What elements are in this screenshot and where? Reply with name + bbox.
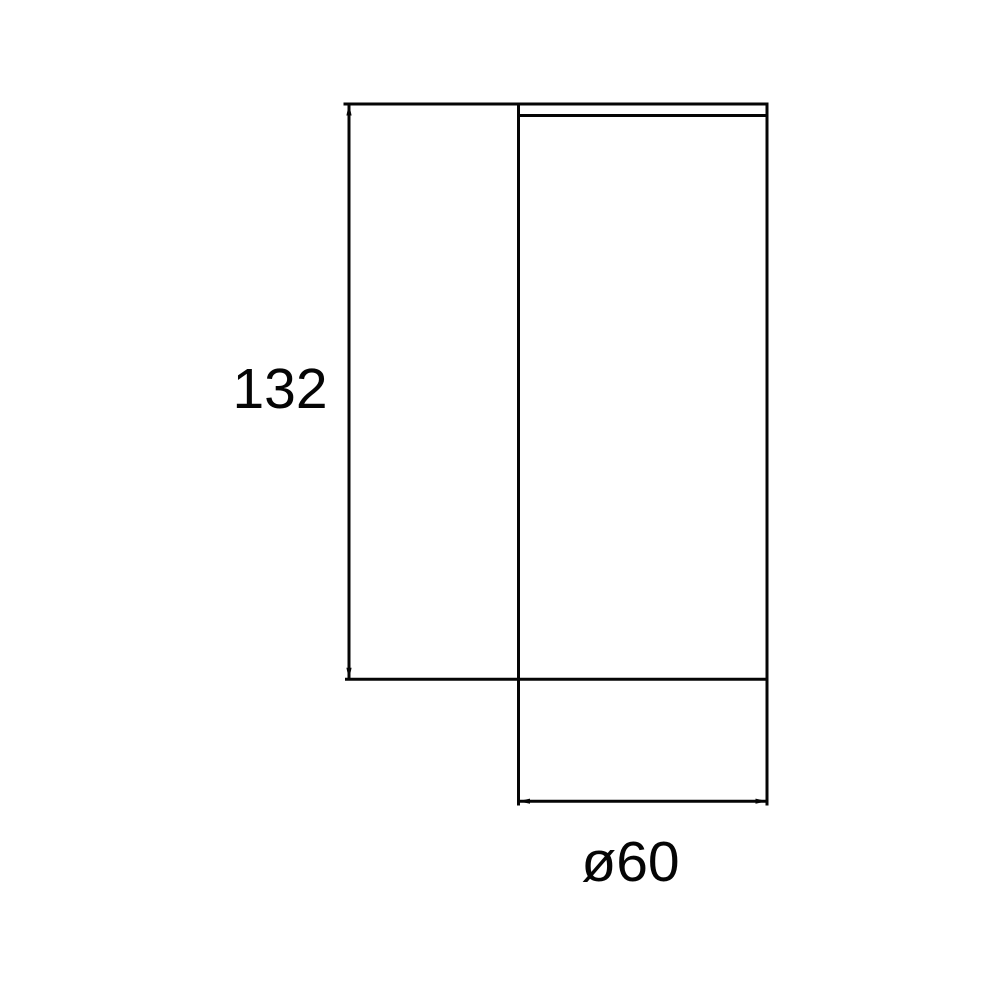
svg-text:132: 132 (232, 357, 327, 421)
svg-text:ø60: ø60 (581, 830, 679, 894)
